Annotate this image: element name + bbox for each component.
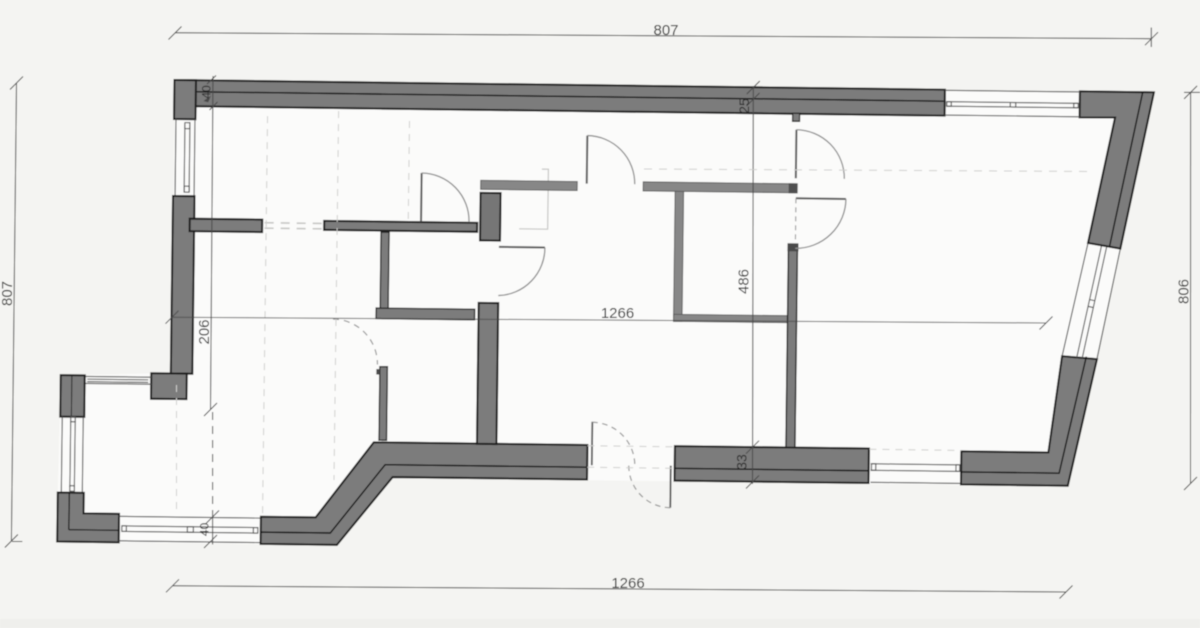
svg-text:1266: 1266	[611, 575, 644, 592]
svg-text:25: 25	[736, 98, 752, 114]
svg-text:486: 486	[736, 269, 753, 294]
svg-text:40: 40	[198, 523, 212, 537]
svg-text:807: 807	[0, 281, 16, 306]
svg-text:33: 33	[734, 454, 750, 470]
svg-text:206: 206	[196, 319, 213, 344]
svg-text:1266: 1266	[601, 305, 634, 322]
svg-text:806: 806	[1176, 279, 1193, 304]
svg-text:807: 807	[653, 22, 678, 39]
svg-text:40: 40	[200, 85, 214, 99]
